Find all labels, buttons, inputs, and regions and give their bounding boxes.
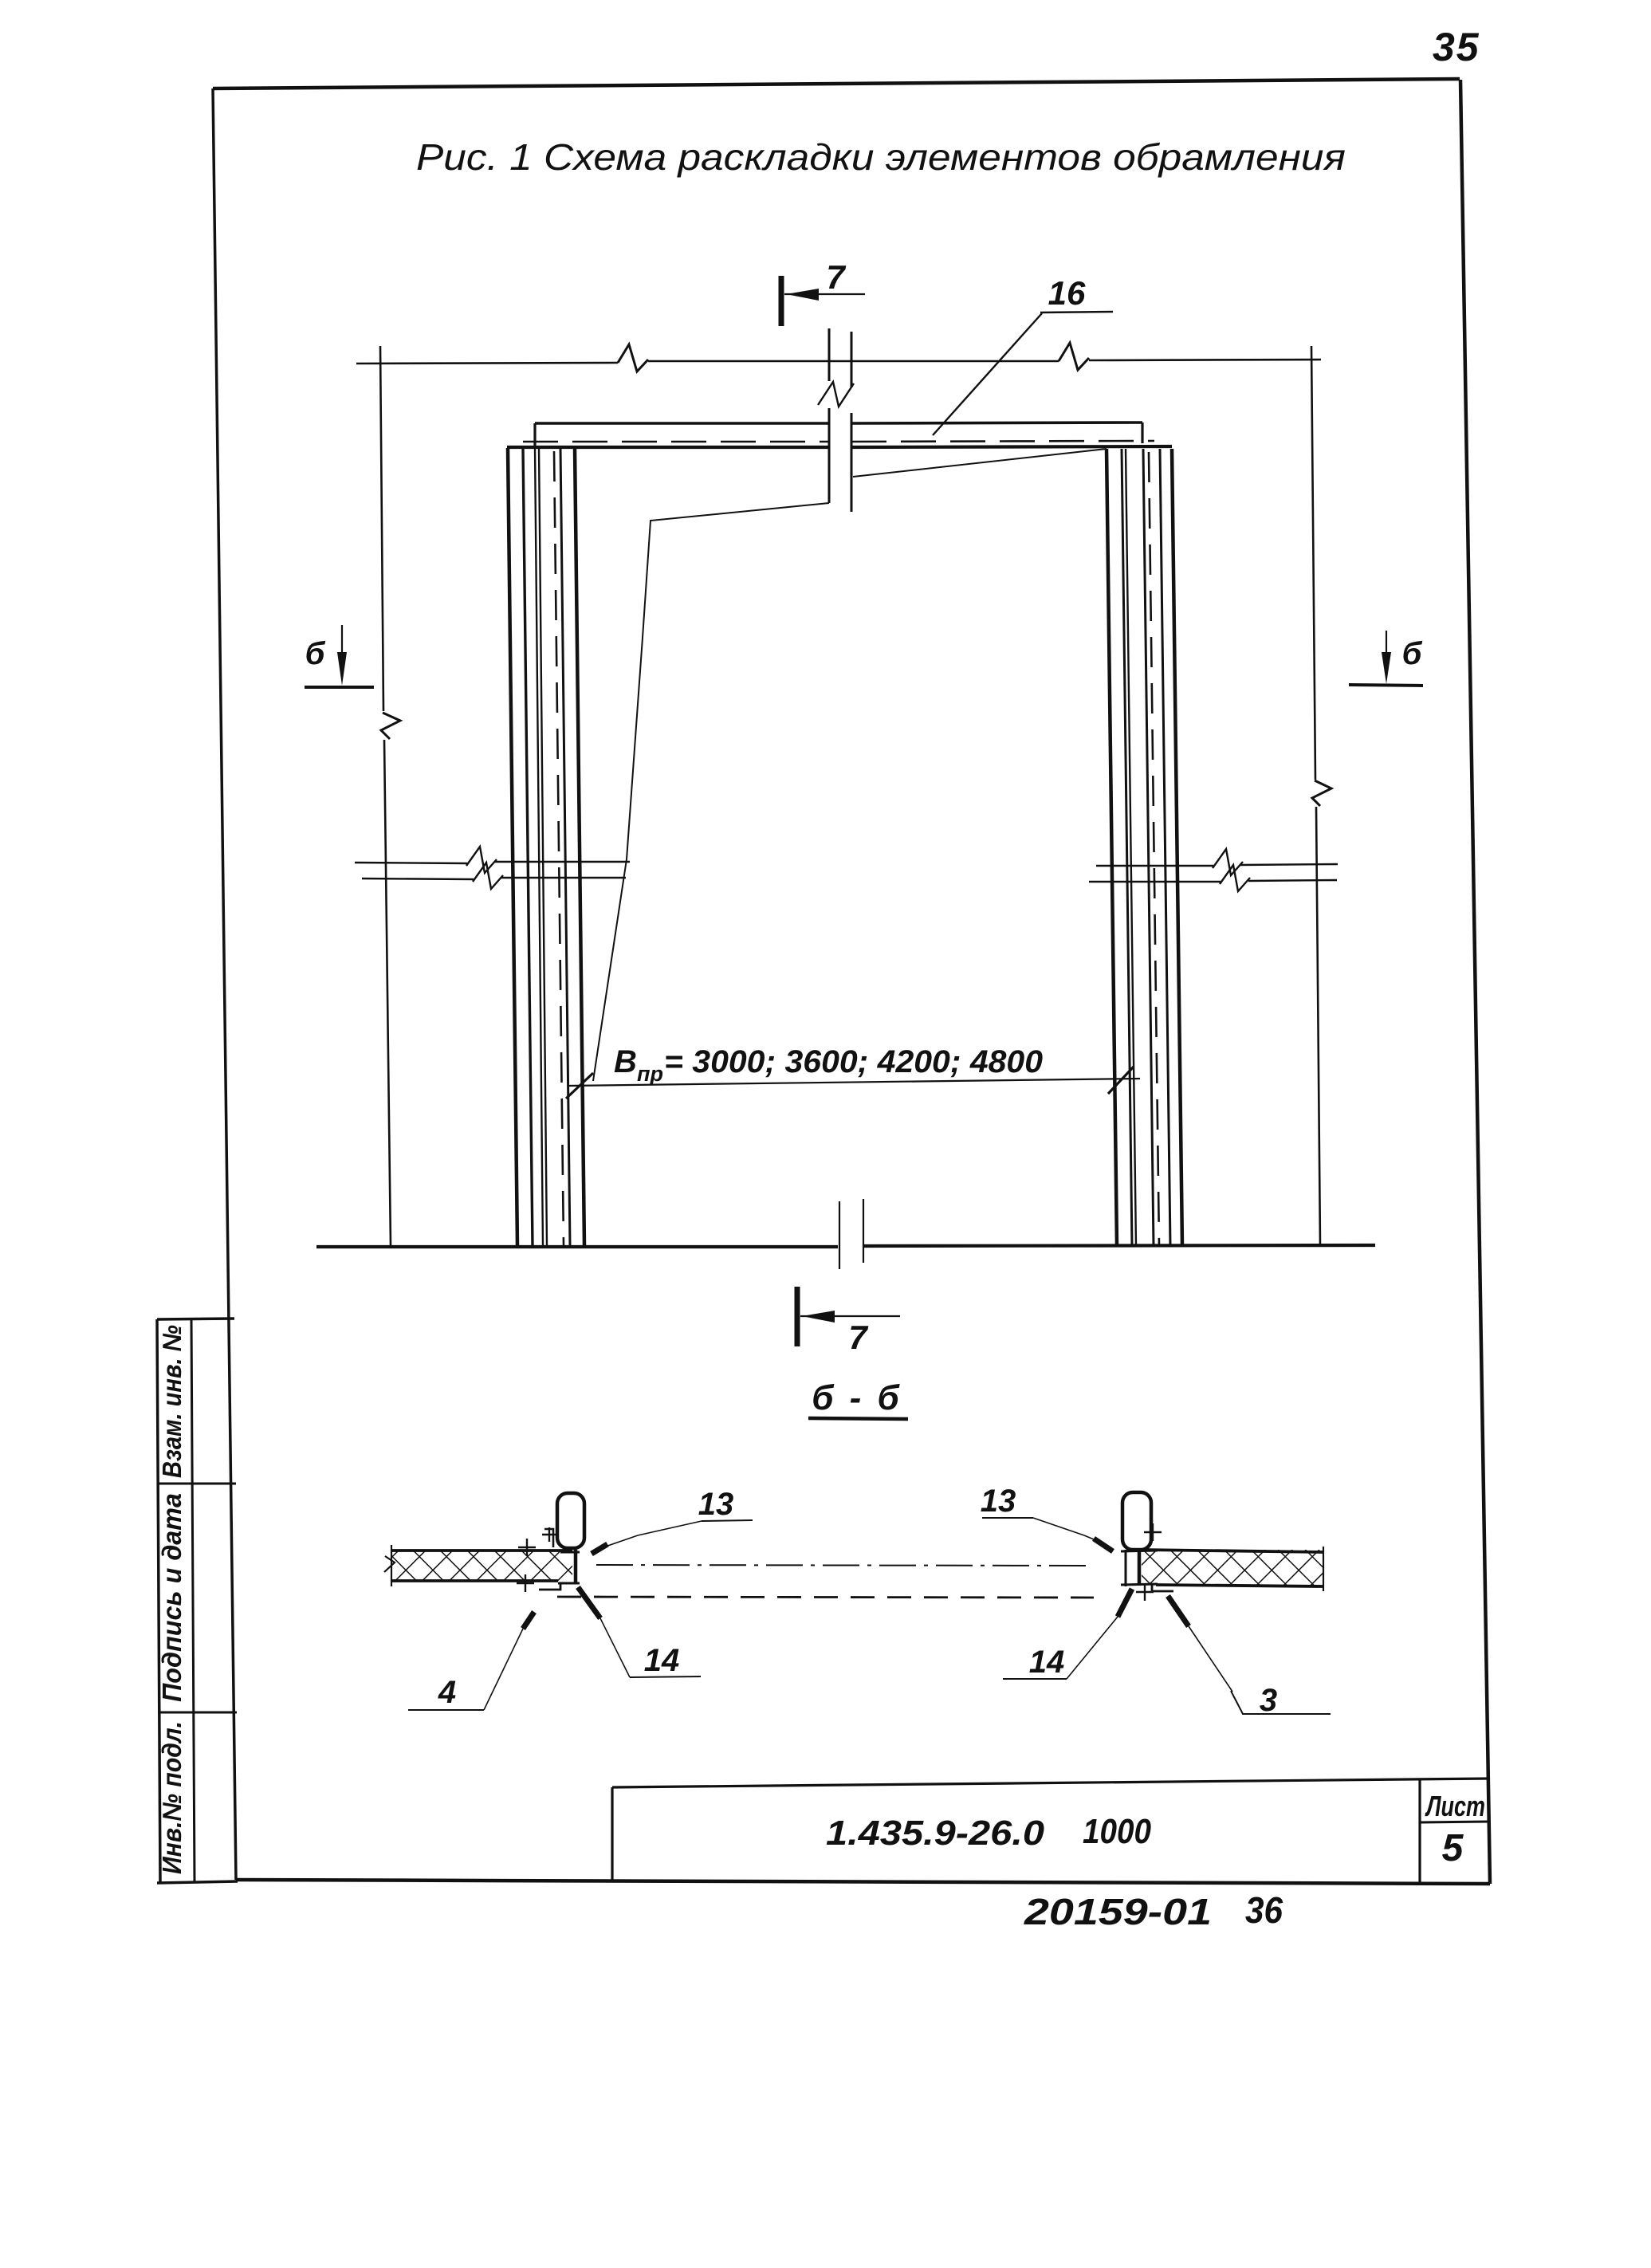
svg-text:7: 7 bbox=[848, 1319, 868, 1356]
svg-text:пр: пр bbox=[637, 1062, 663, 1086]
svg-text:Инв.№ подл.: Инв.№ подл. bbox=[157, 1721, 187, 1874]
svg-text:б: б bbox=[305, 636, 326, 671]
svg-text:14: 14 bbox=[644, 1643, 680, 1678]
svg-text:4: 4 bbox=[438, 1675, 456, 1710]
svg-text:20159-01: 20159-01 bbox=[1024, 1891, 1212, 1932]
svg-text:16: 16 bbox=[1048, 274, 1086, 312]
svg-text:б - б: б - б bbox=[812, 1378, 902, 1417]
svg-text:3: 3 bbox=[1260, 1683, 1277, 1718]
svg-text:13: 13 bbox=[698, 1487, 734, 1522]
svg-text:1000: 1000 bbox=[1083, 1812, 1151, 1851]
svg-text:Подпись и дата: Подпись и дата bbox=[157, 1493, 187, 1702]
svg-text:5: 5 bbox=[1442, 1827, 1464, 1869]
svg-text:1.435.9-26.0: 1.435.9-26.0 bbox=[826, 1814, 1045, 1853]
svg-text:Взам. инв. №: Взам. инв. № bbox=[157, 1325, 187, 1478]
svg-text:36: 36 bbox=[1245, 1889, 1283, 1931]
svg-text:7: 7 bbox=[826, 258, 846, 296]
svg-text:В: В bbox=[614, 1044, 637, 1079]
svg-text:14: 14 bbox=[1029, 1645, 1065, 1680]
svg-text:35: 35 bbox=[1433, 25, 1480, 69]
svg-text:Лист: Лист bbox=[1425, 1790, 1485, 1822]
svg-text:Рис. 1 Схема раскладки элем: Рис. 1 Схема раскладки элементов обрамле… bbox=[416, 136, 1346, 178]
svg-text:13: 13 bbox=[981, 1484, 1016, 1519]
svg-text:б: б bbox=[1402, 636, 1423, 671]
svg-text:= 3000; 3600; 4200; 4800: = 3000; 3600; 4200; 4800 bbox=[664, 1044, 1043, 1079]
